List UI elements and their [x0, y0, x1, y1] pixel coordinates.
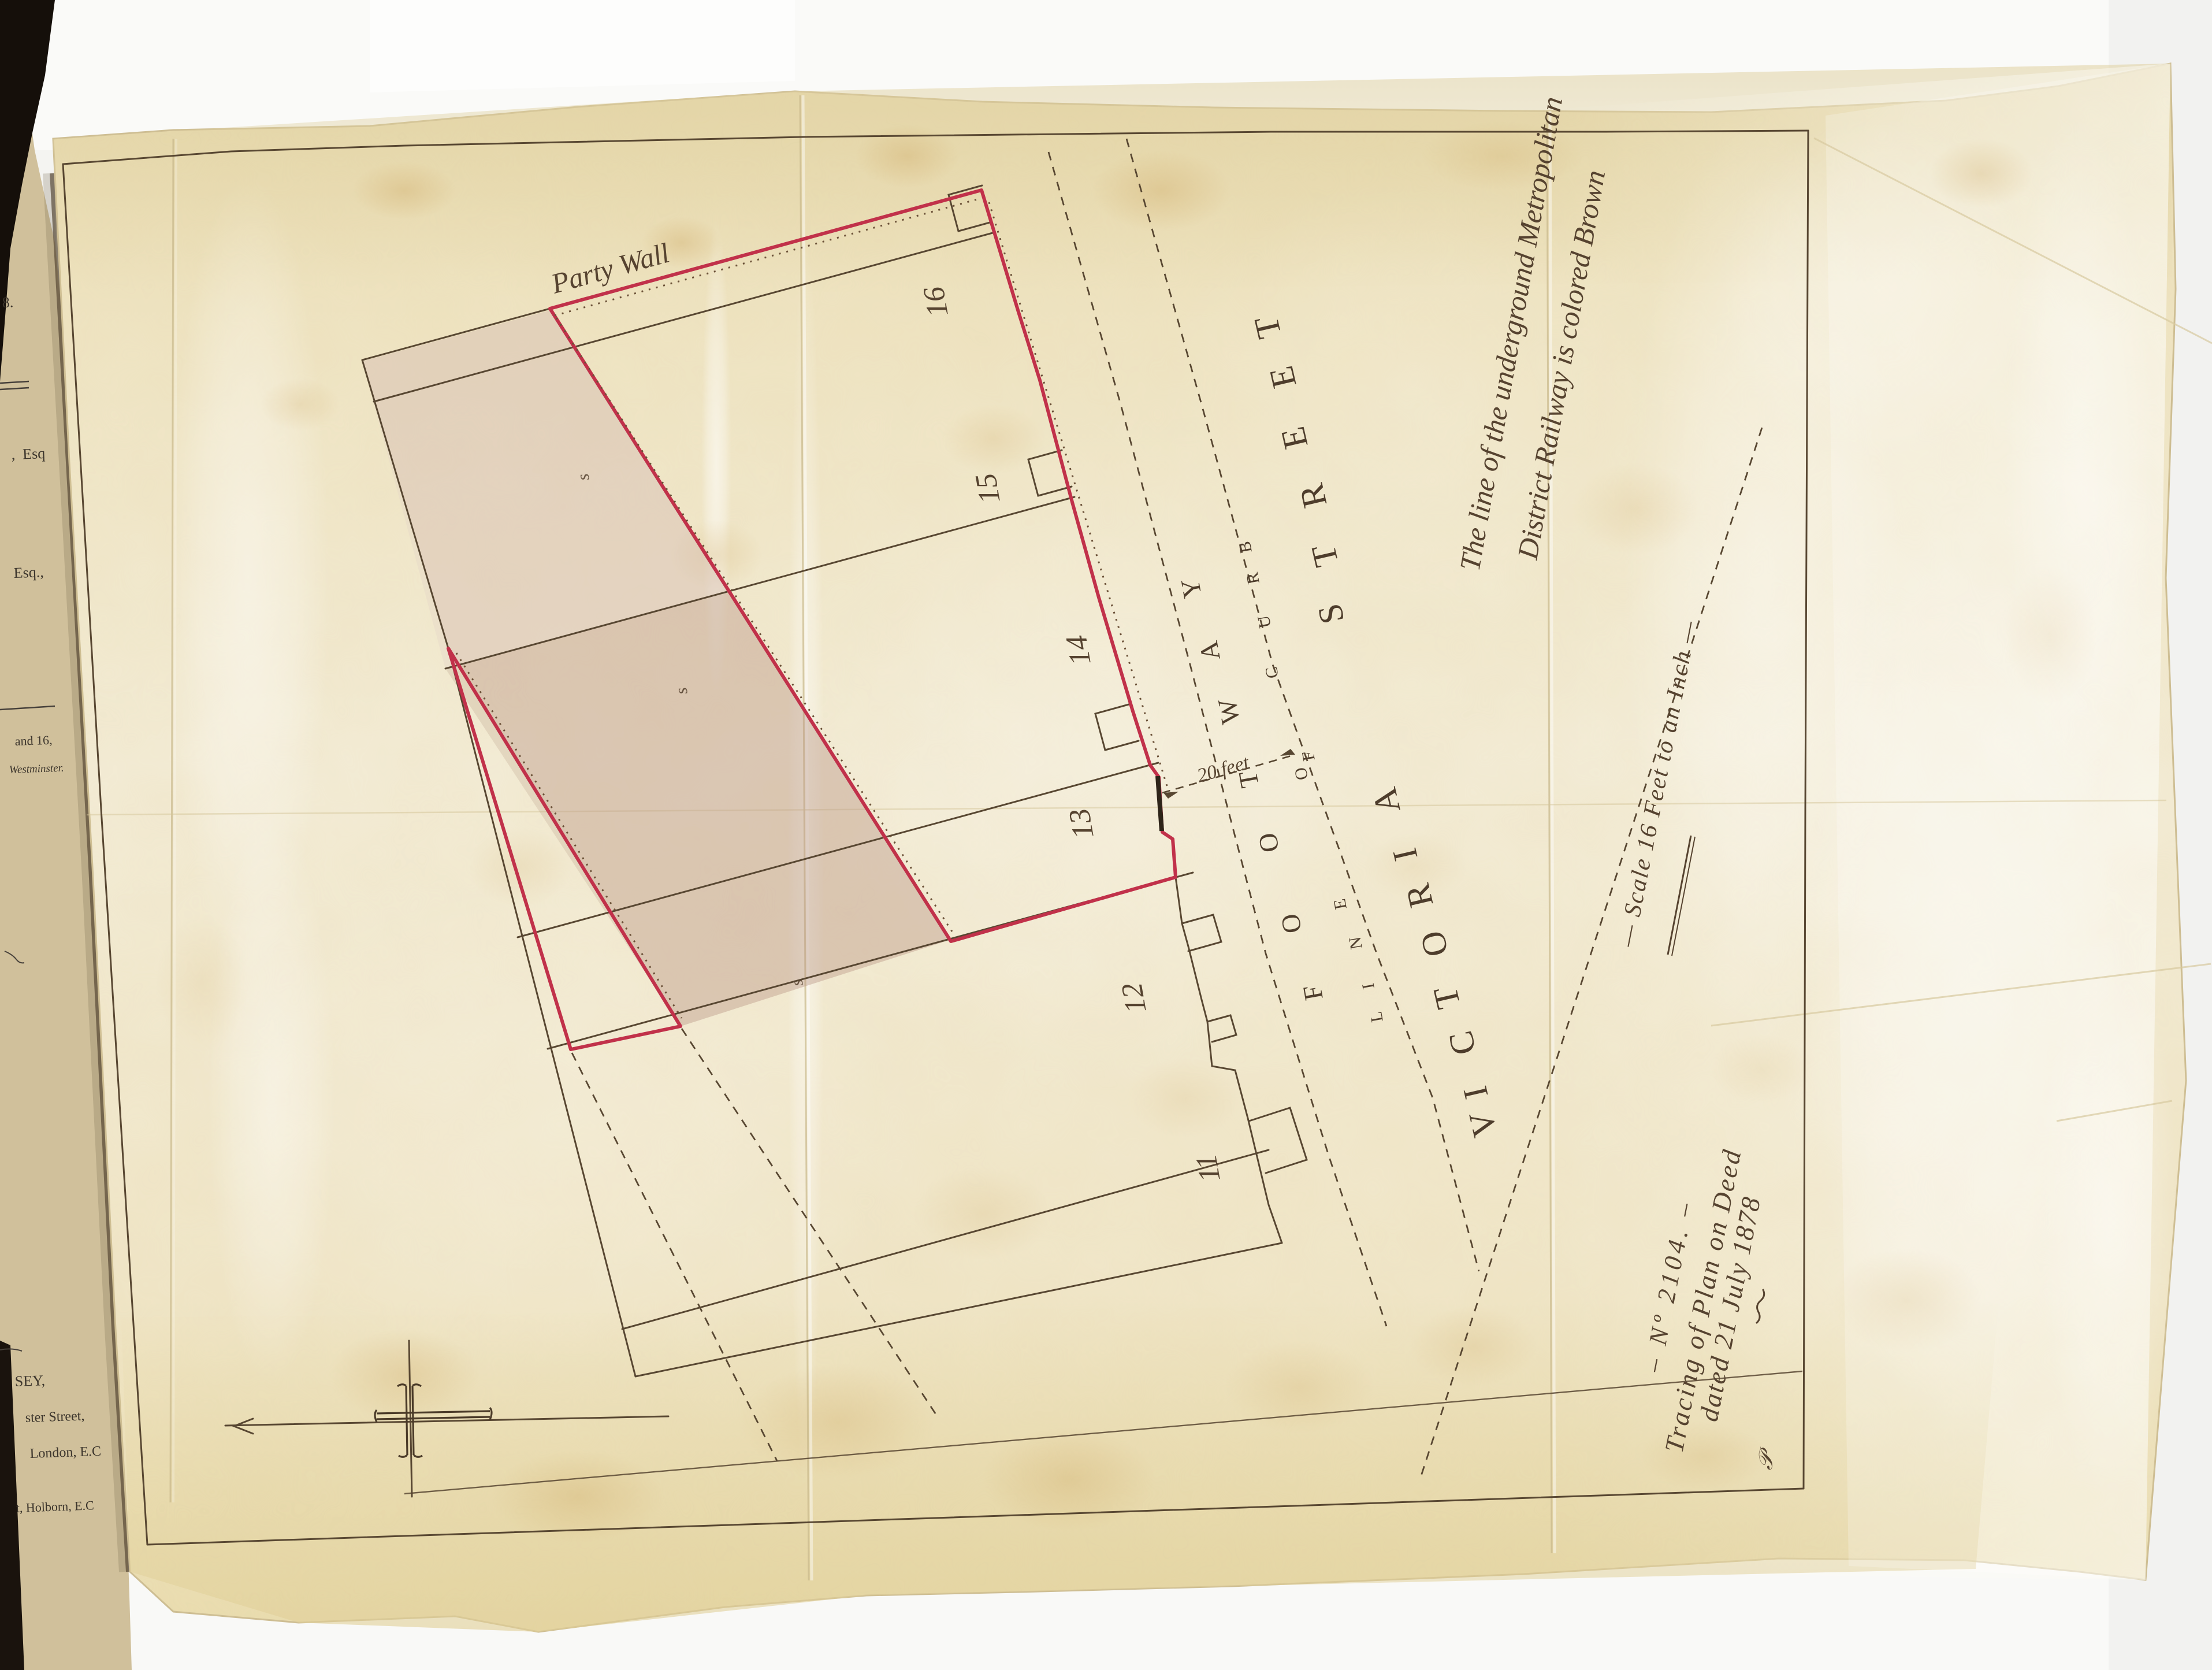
svg-text:Esq.,: Esq.,	[13, 563, 44, 581]
svg-text:London, E.C: London, E.C	[29, 1444, 101, 1461]
svg-text:t, Holborn, E.C: t, Holborn, E.C	[16, 1498, 94, 1515]
svg-text:and 16,: and 16,	[14, 733, 53, 748]
svg-text:12: 12	[1116, 981, 1153, 1016]
svg-text:ster Street,: ster Street,	[25, 1408, 84, 1426]
svg-text:11: 11	[1189, 1152, 1226, 1185]
svg-text:13: 13	[1063, 806, 1101, 841]
svg-text:SEY,: SEY,	[14, 1372, 45, 1390]
svg-text:14: 14	[1060, 633, 1098, 668]
svg-text:15: 15	[969, 471, 1007, 506]
svg-text:8.: 8.	[2, 294, 14, 311]
svg-text:16: 16	[917, 284, 955, 320]
svg-text:Westminster.: Westminster.	[9, 762, 64, 776]
svg-text:, Esq: , Esq	[11, 445, 45, 463]
